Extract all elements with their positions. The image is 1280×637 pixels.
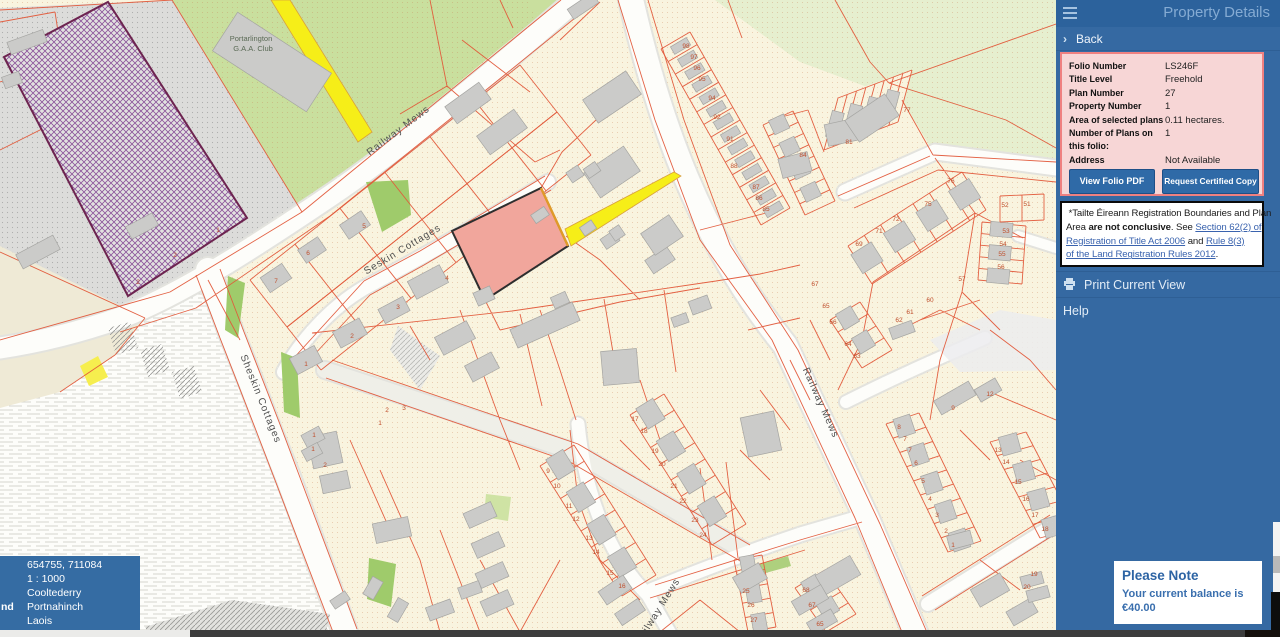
svg-text:16: 16 <box>618 583 626 590</box>
svg-text:13: 13 <box>994 447 1002 454</box>
svg-text:76: 76 <box>947 178 955 185</box>
svg-text:5: 5 <box>362 223 366 230</box>
svg-text:16: 16 <box>1022 496 1030 503</box>
svg-text:81: 81 <box>845 139 853 146</box>
svg-text:3: 3 <box>396 304 400 311</box>
svg-text:61: 61 <box>906 309 914 316</box>
svg-text:2: 2 <box>323 462 327 469</box>
svg-text:77: 77 <box>903 107 911 114</box>
svg-text:52: 52 <box>1001 202 1009 209</box>
svg-text:4: 4 <box>445 275 449 282</box>
svg-text:63: 63 <box>853 353 861 360</box>
svg-text:71: 71 <box>875 228 883 235</box>
svg-text:15: 15 <box>606 570 614 577</box>
svg-text:1: 1 <box>312 432 316 439</box>
svg-text:2: 2 <box>385 407 389 414</box>
svg-text:94: 94 <box>708 95 716 102</box>
svg-text:1: 1 <box>311 446 315 453</box>
svg-text:2: 2 <box>136 279 140 286</box>
svg-text:8: 8 <box>897 424 901 431</box>
svg-text:18: 18 <box>640 428 648 435</box>
svg-text:2: 2 <box>173 252 177 259</box>
svg-text:1: 1 <box>304 361 308 368</box>
svg-text:92: 92 <box>713 114 721 121</box>
svg-text:3: 3 <box>402 405 406 412</box>
svg-text:65: 65 <box>822 303 830 310</box>
svg-text:53: 53 <box>1002 228 1010 235</box>
svg-text:9: 9 <box>951 405 955 412</box>
svg-text:7: 7 <box>274 278 278 285</box>
svg-text:14: 14 <box>1002 459 1010 466</box>
svg-text:10: 10 <box>553 483 561 490</box>
svg-text:95: 95 <box>698 76 706 83</box>
svg-text:84: 84 <box>799 152 807 159</box>
svg-text:4: 4 <box>928 496 932 503</box>
svg-text:51: 51 <box>1023 201 1031 208</box>
svg-text:26: 26 <box>747 602 755 609</box>
svg-text:67: 67 <box>811 281 819 288</box>
svg-text:66: 66 <box>829 319 837 326</box>
svg-text:65: 65 <box>816 621 824 628</box>
svg-text:20: 20 <box>1023 584 1031 591</box>
svg-text:87: 87 <box>752 184 760 191</box>
svg-text:19: 19 <box>651 448 659 455</box>
svg-text:19: 19 <box>1030 571 1038 578</box>
svg-text:Portarlington: Portarlington <box>230 34 273 43</box>
svg-text:13: 13 <box>585 535 593 542</box>
svg-text:55: 55 <box>998 251 1006 258</box>
svg-text:17: 17 <box>631 416 639 423</box>
svg-text:G.A.A. Club: G.A.A. Club <box>233 44 273 53</box>
svg-text:1: 1 <box>216 227 220 234</box>
svg-text:5: 5 <box>921 478 925 485</box>
svg-text:7: 7 <box>903 436 907 443</box>
svg-text:9: 9 <box>546 468 550 475</box>
svg-text:85: 85 <box>762 206 770 213</box>
svg-text:60: 60 <box>926 297 934 304</box>
svg-text:23: 23 <box>691 517 699 524</box>
svg-text:75: 75 <box>924 201 932 208</box>
svg-text:20: 20 <box>658 461 666 468</box>
svg-text:62: 62 <box>895 317 903 324</box>
svg-text:24: 24 <box>699 532 707 539</box>
svg-text:3: 3 <box>935 512 939 519</box>
svg-text:6: 6 <box>914 460 918 467</box>
svg-text:22: 22 <box>679 498 687 505</box>
svg-text:54: 54 <box>999 241 1007 248</box>
svg-text:11: 11 <box>566 503 573 510</box>
svg-text:12: 12 <box>572 516 580 523</box>
svg-text:12: 12 <box>986 391 994 398</box>
svg-text:27: 27 <box>750 617 758 624</box>
svg-text:98: 98 <box>682 43 690 50</box>
svg-text:25: 25 <box>742 588 750 595</box>
svg-text:17: 17 <box>1031 512 1039 519</box>
svg-text:91: 91 <box>726 136 734 143</box>
svg-text:96: 96 <box>693 65 701 72</box>
svg-text:64: 64 <box>844 341 852 348</box>
svg-text:15: 15 <box>1014 479 1022 486</box>
svg-text:18: 18 <box>1041 526 1049 533</box>
svg-text:1: 1 <box>378 420 382 427</box>
svg-text:67: 67 <box>808 602 816 609</box>
svg-text:68: 68 <box>802 587 810 594</box>
svg-text:88: 88 <box>730 163 738 170</box>
svg-text:97: 97 <box>690 54 698 61</box>
svg-text:72: 72 <box>892 216 900 223</box>
svg-text:86: 86 <box>755 195 763 202</box>
svg-text:14: 14 <box>592 549 600 556</box>
svg-text:21: 21 <box>670 483 678 490</box>
svg-text:2: 2 <box>944 528 948 535</box>
svg-text:69: 69 <box>855 241 863 248</box>
svg-text:57: 57 <box>958 276 966 283</box>
svg-text:56: 56 <box>997 264 1005 271</box>
svg-text:2: 2 <box>350 333 354 340</box>
svg-text:7: 7 <box>908 447 912 454</box>
svg-text:1: 1 <box>951 542 955 549</box>
svg-text:6: 6 <box>306 250 310 257</box>
